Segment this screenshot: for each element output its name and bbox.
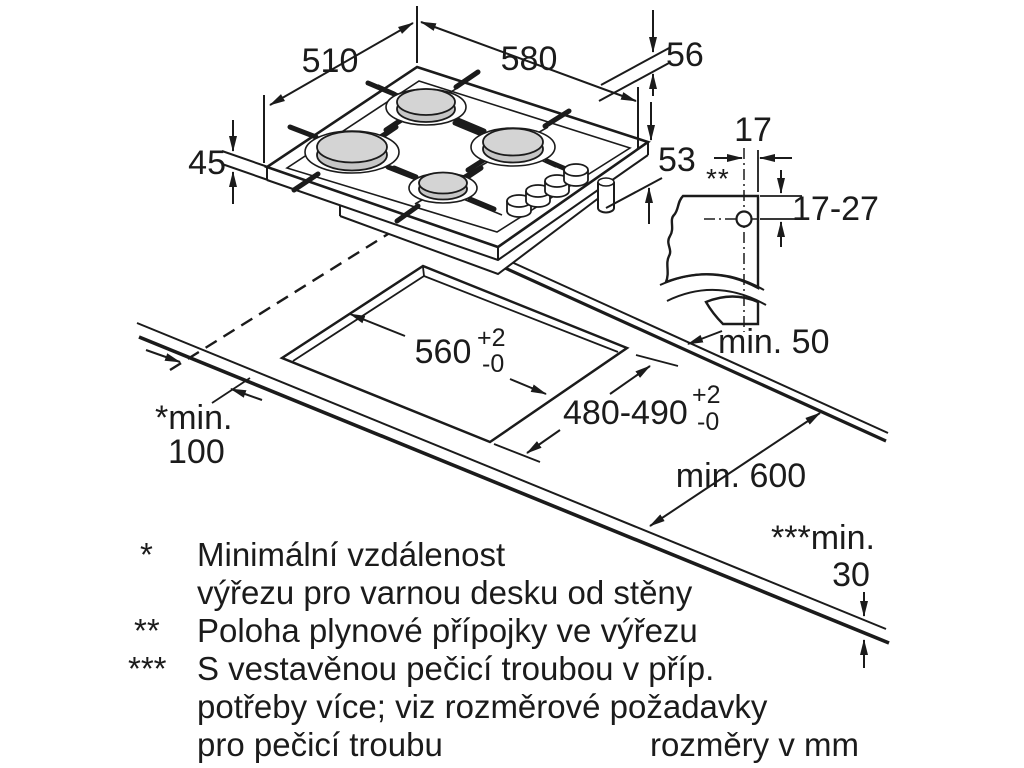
footnote-2-line-1: Poloha plynové přípojky ve výřezu (197, 612, 698, 649)
footnote-3-line-3: pro pečicí troubu (197, 726, 443, 763)
dim-560-tol-plus: +2 (477, 324, 506, 352)
dim-56-ref-upper (601, 47, 671, 85)
gas-detail-marker: ** (706, 163, 730, 194)
gas-pipe-top (598, 178, 614, 186)
dim-45-ref-upper (222, 151, 268, 167)
dim-480-tol-minus: -0 (697, 408, 719, 436)
burner-top (386, 89, 466, 125)
dim-50-arrow (688, 331, 722, 344)
dim-580-label: 580 (501, 40, 558, 78)
dim-min30-label: ***min. (771, 519, 875, 557)
installation-diagram-page: 560 +2 -0 480-490 +2 -0 *min. 100 min. 6… (0, 0, 1024, 768)
dim-min30-value: 30 (832, 556, 870, 594)
cutout-section-lower (706, 297, 758, 325)
burner-right (471, 128, 555, 166)
dim-480-arrow-down (527, 430, 560, 453)
dim-480-tol-plus: +2 (692, 381, 721, 409)
footnote-1-line-2: výřezu pro varnou desku od stěny (197, 574, 693, 611)
dim-min100-value: 100 (168, 433, 225, 471)
hob-installation-diagram: 560 +2 -0 480-490 +2 -0 *min. 100 min. 6… (0, 0, 1024, 768)
footnote-1-line-1: Minimální vzdálenost (197, 536, 505, 573)
footnote-block: * Minimální vzdálenost výřezu pro varnou… (128, 536, 859, 763)
dim-53-label: 53 (658, 141, 696, 179)
burner-bottom (409, 173, 477, 204)
dim-17-27-label: 17-27 (792, 190, 879, 228)
burner-left (305, 131, 399, 173)
footnote-3-line-1: S vestavěnou pečicí troubou v příp. (197, 650, 714, 687)
dim-45-ref-lower (222, 164, 268, 180)
dim-min50-label: min. 50 (718, 323, 830, 361)
dim-560-label: 560 (415, 333, 472, 371)
dim-min100-label: *min. (155, 399, 232, 437)
dim-min600-label: min. 600 (676, 457, 806, 495)
dim-480-ext-upper (636, 355, 678, 366)
footnote-3-line-2: potřeby více; viz rozměrové požadavky (197, 688, 768, 725)
dim-45-label: 45 (188, 144, 226, 182)
dim-100-arrow-right (231, 389, 262, 400)
dim-56-ref-lower (599, 63, 669, 101)
dim-480-490-label: 480-490 (563, 394, 688, 432)
dim-510-label: 510 (302, 42, 359, 80)
dim-17-label: 17 (734, 111, 772, 149)
hob-isometric-view (267, 67, 648, 274)
dim-480-arrow-up (610, 366, 650, 394)
dim-480-ext-lower (494, 444, 540, 462)
footnote-2-marker: ** (134, 612, 160, 649)
gas-connection-point (737, 212, 752, 227)
dim-560-tol-minus: -0 (482, 350, 504, 378)
footnote-1-marker: * (140, 536, 153, 573)
cutout-corner-step (423, 267, 424, 276)
units-note: rozměry v mm (650, 726, 859, 763)
dim-56-label: 56 (666, 36, 704, 74)
footnote-3-marker: *** (128, 650, 167, 687)
